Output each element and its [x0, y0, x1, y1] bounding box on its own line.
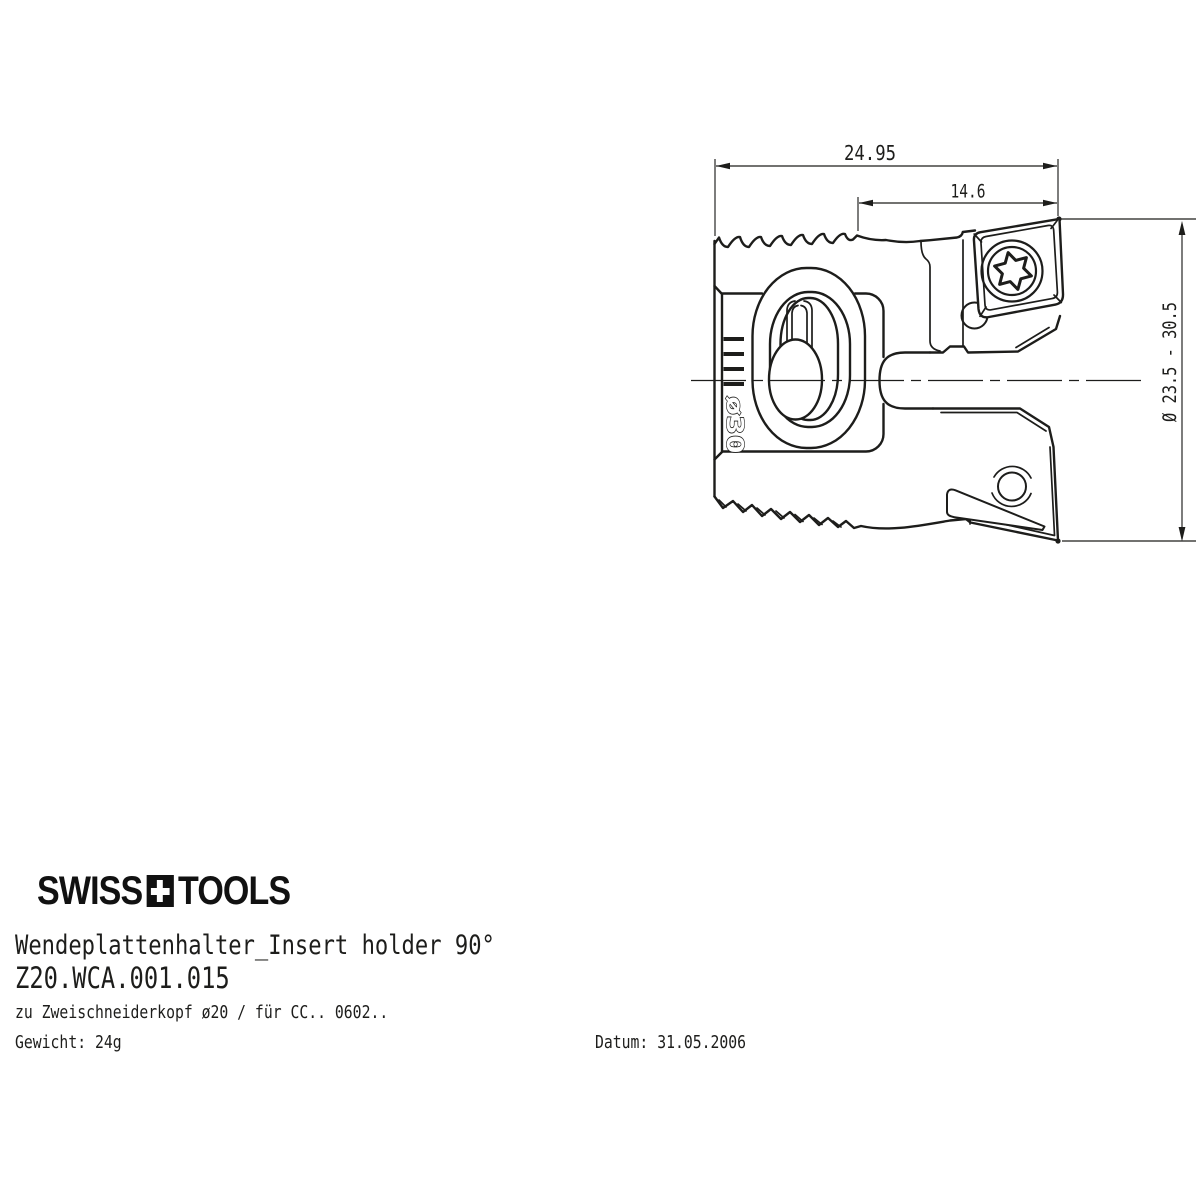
weight-label: Gewicht: 24g	[15, 1034, 122, 1052]
drawing-sheet: 24.95 14.6 Ø 23.5 - 30.5 ø30 SWISS TOOLS…	[0, 0, 1200, 1200]
date-label: Datum: 31.05.2006	[595, 1034, 746, 1052]
description: zu Zweischneiderkopf ø20 / für CC.. 0602…	[15, 1004, 388, 1022]
part-number: Z20.WCA.001.015	[15, 964, 230, 993]
logo-text-left: SWISS	[37, 871, 142, 911]
title-block: SWISS TOOLS Wendeplattenhalter_Insert ho…	[0, 0, 1200, 1200]
swiss-cross-icon	[147, 875, 174, 907]
logo-text-right: TOOLS	[178, 871, 290, 911]
drawing-title: Wendeplattenhalter_Insert holder 90°	[15, 932, 495, 959]
brand-logo: SWISS TOOLS	[37, 871, 290, 911]
